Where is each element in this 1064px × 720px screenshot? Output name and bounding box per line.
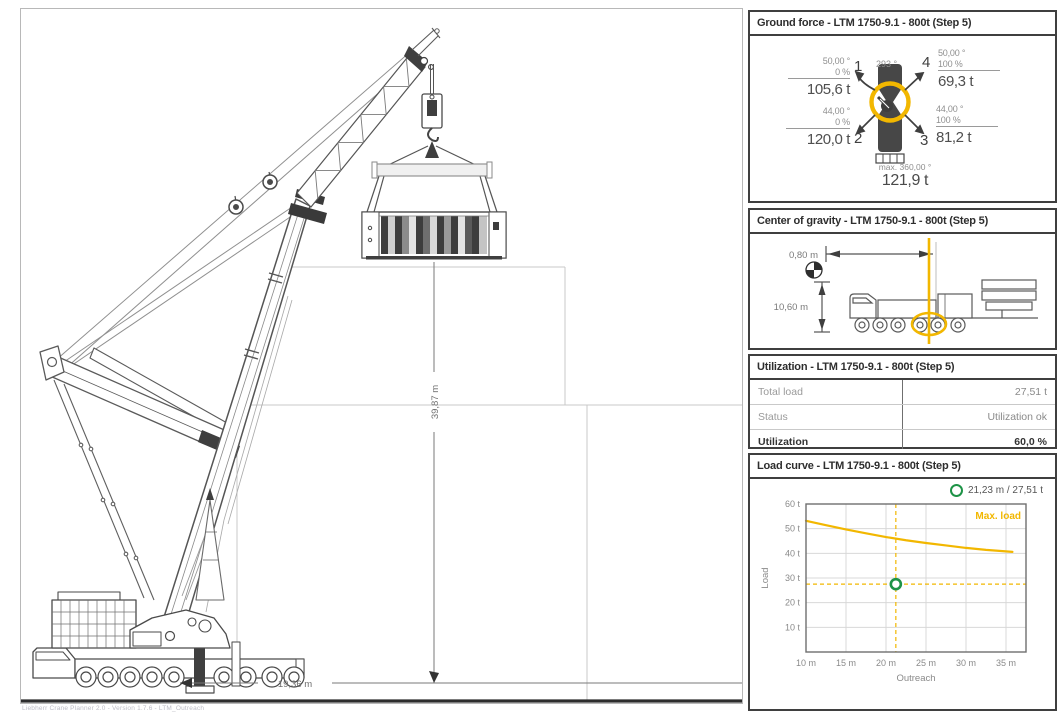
outrigger-4-number: 4 [922,54,930,71]
y-axis-label: Load [760,567,771,588]
load-curve-content: 21,23 m / 27,51 t Max. load10 m15 m20 m2… [750,479,1055,709]
app-version-footer: Liebherr Crane Planner 2.0 - Version 1.7… [22,705,204,712]
load-curve-plot: Max. load10 m15 m20 m25 m30 m35 m10 t20 … [750,497,1055,707]
ground-force-content: 50,00 ° 0 % 105,6 t 1 293 ° 4 50,00 ° 10… [750,36,1055,201]
outrigger-3-values: 44,00 ° 100 % 81,2 t [936,104,998,146]
boom-pivot [166,632,175,641]
total-load-value: 27,51 t [1015,380,1047,404]
y-tick-label: 30 t [785,573,801,583]
counterweight-stack [52,592,136,648]
y-tick-label: 40 t [785,548,801,558]
dim-height-label: 39,87 m [430,385,441,419]
load-curve-panel: Load curve - LTM 1750-9.1 - 800t (Step 5… [748,453,1057,711]
dimension-height: 39,87 m [429,262,441,683]
outrigger-3-number: 3 [920,132,928,149]
vertical-dimension [814,282,830,332]
horizontal-dimension [826,246,933,262]
y-tick-label: 10 t [785,622,801,632]
derrick-mast [40,346,240,458]
marker-ring-icon [950,484,963,497]
x-tick-label: 25 m [916,658,936,668]
dim-outreach-label: 19,36 m [278,679,312,690]
load-box [362,212,506,260]
utilization-panel: Utilization - LTM 1750-9.1 - 800t (Step … [748,354,1057,449]
scene-outline-lines [237,267,742,700]
table-row: Utilization 60,0 % [750,430,1055,454]
ground-force-title: Ground force - LTM 1750-9.1 - 800t (Step… [750,12,1055,36]
utilization-label: Utilization [758,430,808,454]
superstructure [130,610,230,648]
outrigger-2-values: 44,00 ° 0 % 120,0 t [786,106,850,148]
outrigger-1-values: 50,00 ° 0 % 105,6 t [788,56,850,98]
y-tick-label: 50 t [785,524,801,534]
load-curve-title: Load curve - LTM 1750-9.1 - 800t (Step 5… [750,455,1055,479]
slew-angle-value: 293 ° [876,59,897,69]
x-axis-label: Outreach [896,673,935,684]
truck-side-view [850,280,1038,332]
lift-plan-drawing: 39,87 m 19,36 m [0,0,745,714]
marker-legend-label: 21,23 m / 27,51 t [968,485,1043,496]
x-tick-label: 30 m [956,658,976,668]
center-of-gravity-panel: Center of gravity - LTM 1750-9.1 - 800t … [748,208,1057,350]
cog-horizontal-label: 0,80 m [789,250,818,261]
max-ground-force: max. 360,00 ° 121,9 t [850,162,960,190]
x-tick-label: 20 m [876,658,896,668]
center-of-gravity-content: 0,80 m 10,60 m [750,234,1055,348]
utilization-table: Total load 27,51 t Status Utilization ok… [750,380,1055,449]
table-row: Status Utilization ok [750,405,1055,430]
guy-pulleys [229,172,277,214]
working-point-marker [891,579,901,589]
center-of-gravity-title: Center of gravity - LTM 1750-9.1 - 800t … [750,210,1055,234]
series-label: Max. load [975,511,1021,522]
y-tick-label: 60 t [785,499,801,509]
y-tick-label: 20 t [785,598,801,608]
utilization-title: Utilization - LTM 1750-9.1 - 800t (Step … [750,356,1055,380]
x-tick-label: 35 m [996,658,1016,668]
status-value: Utilization ok [987,405,1047,429]
x-tick-label: 10 m [796,658,816,668]
carrier-top-view [876,64,904,163]
ground-force-panel: Ground force - LTM 1750-9.1 - 800t (Step… [748,10,1057,203]
table-row: Total load 27,51 t [750,380,1055,405]
outrigger-4-values: 50,00 ° 100 % 69,3 t [938,48,1000,90]
lattice-jib [297,53,425,207]
crane-planner-report: 39,87 m 19,36 m Liebherr Crane Planner 2… [0,0,1064,720]
cog-symbol [806,262,822,278]
cog-diagram: 0,80 m 10,60 m [750,234,1055,348]
outrigger-2-number: 2 [854,130,862,147]
status-label: Status [758,405,788,429]
utilization-value: 60,0 % [1014,430,1047,454]
chart-legend: 21,23 m / 27,51 t [950,484,1043,497]
spreader-beam [372,162,492,178]
hook-block [422,94,442,141]
cog-vertical-label: 10,60 m [774,302,808,313]
outrigger-1-number: 1 [854,58,862,75]
x-tick-label: 15 m [836,658,856,668]
total-load-label: Total load [758,380,803,404]
